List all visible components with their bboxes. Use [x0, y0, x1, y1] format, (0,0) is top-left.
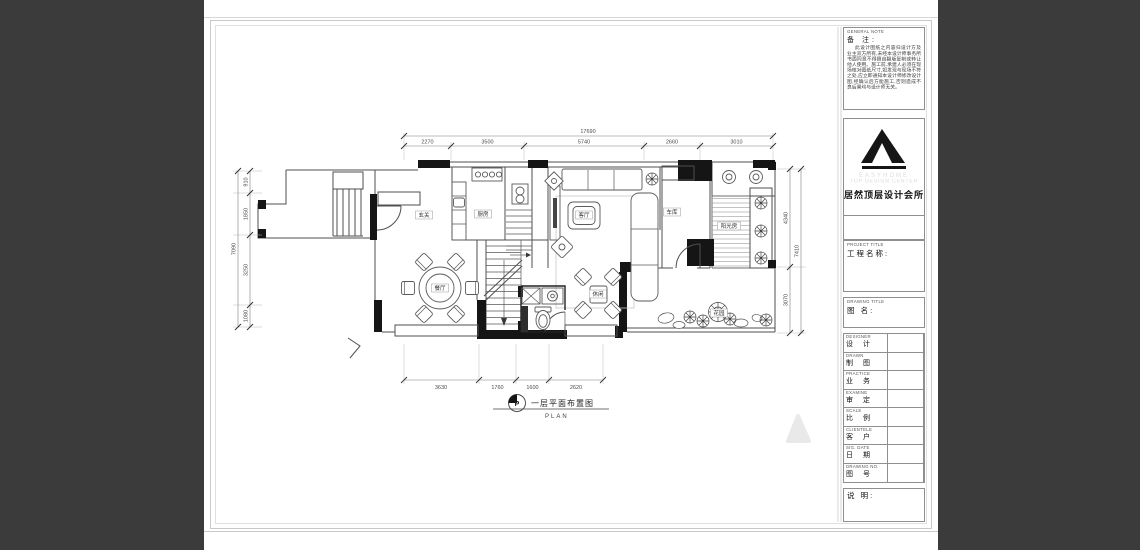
watermark-triangle	[788, 416, 809, 441]
field-cn-label: 设 计	[846, 339, 885, 349]
wall-solids	[258, 160, 776, 339]
brand-divider	[843, 215, 925, 240]
general-note-en: GENERAL NOTE	[847, 30, 900, 34]
caption-title-en: PLAN	[545, 414, 569, 420]
dim-top-2: 3500	[481, 140, 493, 146]
room-label-leisure: 休闲	[592, 290, 604, 298]
field-en-label: DRAWING NO.	[846, 465, 874, 469]
project-title-en: PROJECT TITLE	[847, 243, 900, 247]
signature-table: DESIGNER设 计 DRAWN制 图 PRACTICE业 务 EXAMINE…	[843, 333, 925, 483]
field-en-label: SIG. DATE	[846, 446, 874, 450]
field-value	[888, 371, 924, 389]
dim-left-3: 3250	[244, 264, 250, 276]
dim-top-3: 5740	[578, 140, 590, 146]
field-cn-label: 客 户	[846, 432, 885, 442]
general-note-cn: 备 注:	[847, 35, 921, 45]
dimension-bottom: 3630 1760 1600 2620	[401, 344, 606, 391]
brand-logo-icon	[861, 129, 907, 171]
drawing-title-en: DRAWING TITLE	[847, 300, 900, 304]
field-date: SIG. DATE日 期	[844, 445, 924, 464]
brand-section: EASYHOME TOP DESIGN CENTER 居然顶层设计会所	[843, 118, 925, 240]
field-value	[888, 464, 924, 483]
field-value	[888, 427, 924, 445]
field-clientele: CLIENTELE客 户	[844, 427, 924, 446]
remark-label: 说 明:	[847, 490, 921, 501]
dim-bottom-3: 1600	[526, 385, 538, 391]
field-cn-label: 制 图	[846, 358, 885, 368]
field-cn-label: 比 例	[846, 413, 885, 423]
drawing-title-section: DRAWING TITLE 图 名:	[843, 297, 925, 328]
dim-right-2: 3070	[784, 294, 790, 306]
dim-right-1: 4340	[784, 212, 790, 224]
bathroom-fixtures	[521, 286, 565, 332]
field-en-label: DRAWN	[846, 354, 874, 358]
caption-title-cn: 一层平面布置图	[531, 398, 594, 408]
field-en-label: SCALE	[846, 409, 874, 413]
dim-bottom-1: 3630	[435, 385, 447, 391]
dim-top-4: 2660	[666, 140, 678, 146]
general-note-body: 此设计图纸之内容归设计方及业主双方所有,未经本设计师事务所书面同意不得擅自翻版复…	[847, 46, 921, 91]
field-en-label: EXAMINE	[846, 391, 874, 395]
dim-bottom-4: 2620	[570, 385, 582, 391]
brand-name-cn: 居然顶层设计会所	[844, 188, 924, 201]
dim-left-4: 1080	[244, 310, 250, 322]
room-label-garage: 车库	[666, 208, 678, 216]
dim-top-total: 17690	[580, 129, 595, 135]
field-cn-label: 业 务	[846, 376, 885, 386]
floor-plan-drawing: 玄关 厨房 客厅 车库 阳光房 餐厅 休闲 花园	[204, 0, 938, 550]
field-value	[888, 445, 924, 463]
remark-section: 说 明:	[843, 488, 925, 522]
field-drawn: DRAWN制 图	[844, 353, 924, 372]
field-designer: DESIGNER设 计	[844, 334, 924, 353]
field-scale: SCALE比 例	[844, 408, 924, 427]
room-label-garden: 花园	[713, 309, 725, 317]
field-drawing-no: DRAWING NO.图 号	[844, 464, 924, 483]
field-en-label: PRACTICE	[846, 372, 874, 376]
room-label-sunroom: 阳光房	[721, 222, 738, 230]
drawing-caption: P 一层平面布置图 PLAN	[493, 395, 609, 421]
kitchen-fixtures	[452, 168, 502, 240]
field-examine: EXAMINE审 定	[844, 390, 924, 409]
field-value	[888, 390, 924, 408]
general-note-section: GENERAL NOTE 备 注: 此设计图纸之内容归设计方及业主双方所有,未经…	[843, 27, 925, 110]
drawing-sheet: 玄关 厨房 客厅 车库 阳光房 餐厅 休闲 花园	[204, 0, 938, 550]
field-en-label: CLIENTELE	[846, 428, 874, 432]
caption-symbol: P	[515, 401, 520, 408]
field-cn-label: 图 号	[846, 469, 885, 479]
dim-bottom-2: 1760	[491, 385, 503, 391]
field-cn-label: 审 定	[846, 395, 885, 405]
titleblock-separator	[838, 27, 841, 522]
project-title-section: PROJECT TITLE 工程名称:	[843, 240, 925, 292]
field-value	[888, 353, 924, 371]
dim-left-total: 7090	[232, 243, 238, 255]
dimension-left: 7090 910 1850 3250 1080	[232, 168, 263, 330]
dim-left-1: 910	[244, 177, 250, 186]
drawing-title-cn: 图 名:	[847, 305, 921, 316]
room-label-dining: 餐厅	[434, 284, 446, 292]
room-label-hall: 玄关	[418, 211, 430, 219]
project-title-cn: 工程名称:	[847, 248, 921, 259]
dim-top-1: 2270	[421, 140, 433, 146]
field-cn-label: 日 期	[846, 450, 885, 460]
title-block: GENERAL NOTE 备 注: 此设计图纸之内容归设计方及业主双方所有,未经…	[843, 27, 927, 523]
field-value	[888, 334, 924, 352]
field-en-label: DESIGNER	[846, 335, 874, 339]
room-label-living: 客厅	[578, 211, 590, 219]
dim-right-total: 7410	[795, 245, 801, 257]
room-label-kitchen: 厨房	[477, 210, 489, 218]
brand-subname-en: TOP DESIGN CENTER	[850, 179, 918, 184]
dim-left-2: 1850	[244, 208, 250, 220]
dimension-top: 17690 2270 3500 5740 2660 3010	[401, 129, 776, 160]
field-value	[888, 408, 924, 426]
dim-top-5: 3010	[730, 140, 742, 146]
dimension-right: 4340 3070 7410	[777, 166, 806, 336]
field-practice: PRACTICE业 务	[844, 371, 924, 390]
cad-viewer-canvas: 玄关 厨房 客厅 车库 阳光房 餐厅 休闲 花园	[0, 0, 1140, 550]
